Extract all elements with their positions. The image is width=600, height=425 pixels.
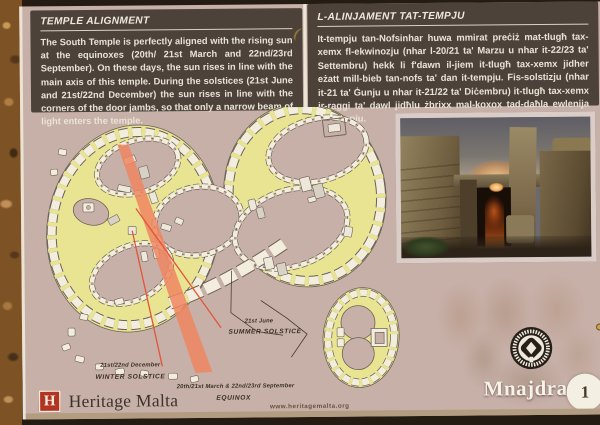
heritage-malta-branding: H Heritage Malta	[39, 389, 179, 412]
photo-of-information-sign: TEMPLE ALIGNMENT The South Temple is per…	[0, 0, 600, 425]
english-text-panel: TEMPLE ALIGNMENT The South Temple is per…	[30, 8, 303, 112]
website-url: www.heritagemalta.org	[240, 402, 380, 410]
sunrise-doorway-photo	[395, 112, 596, 264]
site-plan-diagram: 21st June SUMMER SOLSTICE 21st/22nd Dece…	[23, 106, 418, 415]
winter-solstice-name-label: WINTER SOLSTICE	[96, 373, 166, 381]
english-panel-title: TEMPLE ALIGNMENT	[40, 14, 292, 27]
information-sign: TEMPLE ALIGNMENT The South Temple is per…	[19, 1, 600, 419]
photo-shrub	[401, 235, 451, 258]
maltese-panel-title: L-ALINJAMENT TAT-TEMPJU	[317, 10, 588, 23]
title-underline	[40, 28, 292, 31]
maltese-text-panel: L-ALINJAMENT TAT-TEMPJU It-tempju tan-No…	[307, 2, 599, 109]
excavation-boundary-line	[231, 270, 284, 335]
equinox-name-label: EQUINOX	[216, 395, 251, 402]
photo-sun	[486, 182, 505, 193]
summer-solstice-name-label: SUMMER SOLSTICE	[228, 328, 301, 336]
rock-ground-strip	[0, 0, 22, 425]
summer-solstice-date-label: 21st June	[244, 318, 274, 324]
panel-number-badge: 1	[566, 373, 600, 410]
site-name: Mnajdra	[483, 376, 567, 402]
world-heritage-emblem-icon	[509, 326, 553, 370]
winter-solstice-date-label: 21st/22nd December	[99, 362, 161, 369]
mounting-screw	[596, 323, 600, 330]
heritage-malta-logo-icon: H	[39, 390, 61, 412]
equinox-date-label: 20th/21st March & 22nd/23rd September	[176, 383, 295, 390]
brand-name: Heritage Malta	[69, 390, 179, 412]
title-underline	[317, 24, 588, 27]
